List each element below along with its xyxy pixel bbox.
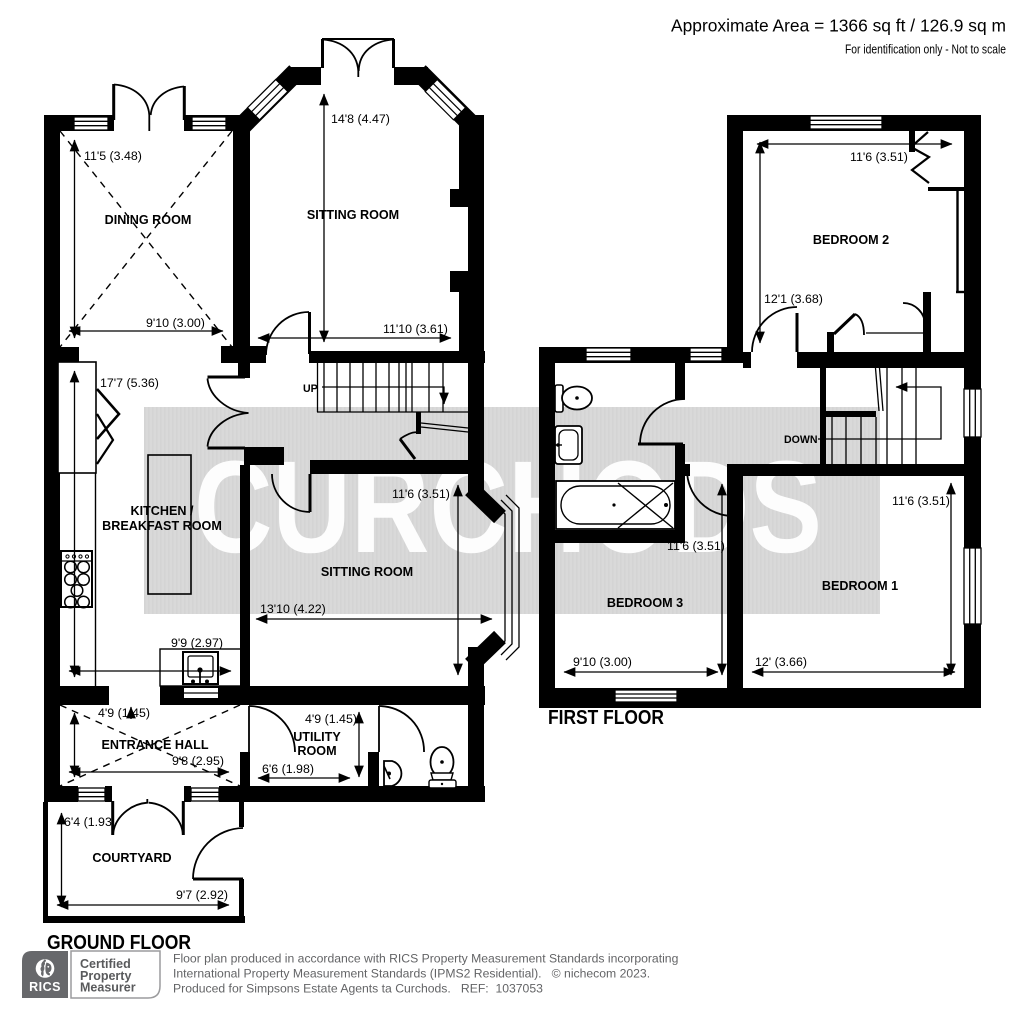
svg-text:4'9 (1.45): 4'9 (1.45)	[98, 706, 150, 720]
svg-text:13'10 (4.22): 13'10 (4.22)	[260, 602, 326, 616]
svg-text:International Property Measure: International Property Measurement Stand…	[173, 967, 650, 981]
svg-text:BEDROOM 3: BEDROOM 3	[607, 596, 683, 610]
svg-text:6'4 (1.93: 6'4 (1.93	[64, 815, 112, 829]
svg-text:11'6 (3.51): 11'6 (3.51)	[392, 487, 450, 501]
svg-text:12'1 (3.68): 12'1 (3.68)	[764, 292, 823, 306]
svg-text:11'10 (3.61): 11'10 (3.61)	[383, 322, 448, 336]
svg-text:9'8 (2.95): 9'8 (2.95)	[172, 754, 224, 768]
svg-text:9'9 (2.97): 9'9 (2.97)	[171, 636, 223, 650]
svg-text:17'7 (5.36): 17'7 (5.36)	[100, 376, 159, 390]
svg-text:RICS: RICS	[29, 980, 61, 994]
svg-text:11'6 (3.51): 11'6 (3.51)	[850, 150, 908, 164]
svg-text:BREAKFAST ROOM: BREAKFAST ROOM	[102, 519, 222, 533]
svg-text:9'7 (2.92): 9'7 (2.92)	[176, 888, 228, 902]
svg-text:11'6 (3.51): 11'6 (3.51)	[892, 494, 950, 508]
svg-text:11'5 (3.48): 11'5 (3.48)	[84, 149, 142, 163]
svg-text:Produced for Simpsons Estate A: Produced for Simpsons Estate Agents ta C…	[173, 982, 543, 996]
svg-text:SITTING ROOM: SITTING ROOM	[307, 208, 399, 222]
svg-text:UP: UP	[303, 383, 318, 395]
svg-text:14'8 (4.47): 14'8 (4.47)	[331, 112, 390, 126]
svg-text:SITTING ROOM: SITTING ROOM	[321, 565, 413, 579]
svg-text:DOWN: DOWN	[784, 434, 818, 446]
svg-text:BEDROOM 2: BEDROOM 2	[813, 233, 889, 247]
svg-text:Measurer: Measurer	[80, 981, 136, 995]
svg-text:Floor plan produced in accorda: Floor plan produced in accordance with R…	[173, 952, 678, 966]
svg-text:FIRST FLOOR: FIRST FLOOR	[548, 707, 664, 729]
svg-text:ENTRANCE HALL: ENTRANCE HALL	[101, 738, 208, 752]
svg-text:6'6 (1.98): 6'6 (1.98)	[262, 762, 314, 776]
svg-text:9'10 (3.00): 9'10 (3.00)	[146, 316, 205, 330]
svg-text:KITCHEN /: KITCHEN /	[131, 504, 194, 518]
svg-text:9'10 (3.00): 9'10 (3.00)	[573, 655, 632, 669]
svg-text:11'6 (3.51): 11'6 (3.51)	[667, 539, 725, 553]
svg-text:UTILITY: UTILITY	[293, 730, 341, 744]
svg-text:BEDROOM 1: BEDROOM 1	[822, 579, 898, 593]
svg-text:ROOM: ROOM	[297, 744, 336, 758]
svg-text:Approximate Area = 1366 sq ft: Approximate Area = 1366 sq ft / 126.9 sq…	[671, 16, 1006, 36]
svg-text:4'9 (1.45): 4'9 (1.45)	[305, 712, 357, 726]
svg-text:For identification only - Not: For identification only - Not to scale	[845, 42, 1006, 57]
svg-text:DINING ROOM: DINING ROOM	[105, 213, 192, 227]
svg-text:COURTYARD: COURTYARD	[92, 851, 171, 865]
svg-text:12' (3.66): 12' (3.66)	[755, 655, 807, 669]
